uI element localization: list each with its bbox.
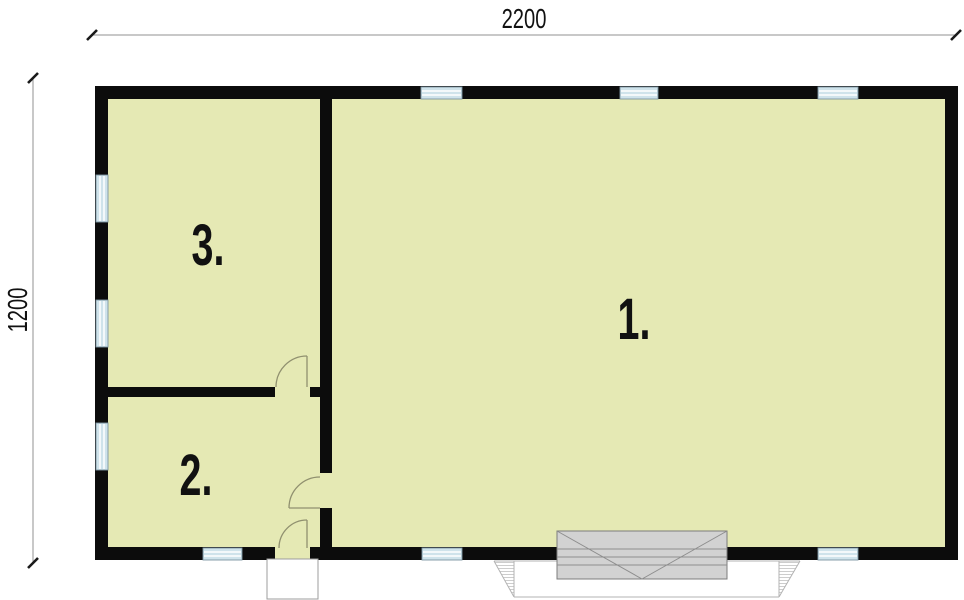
room-label-3: 3. [192, 212, 225, 277]
window-symbol [96, 300, 108, 347]
interior-wall-segment [106, 387, 275, 397]
entrance-step [267, 559, 318, 599]
interior-wall-segment [320, 99, 332, 473]
dimension-left: 1200 [3, 73, 38, 568]
floor-area [108, 99, 945, 547]
window-symbol [818, 548, 858, 560]
floor-plan-page: 2200 1200 [0, 0, 964, 600]
floor-plan-canvas: 2200 1200 [0, 0, 964, 600]
room-label-1: 1. [618, 286, 651, 351]
dimension-top: 2200 [87, 4, 961, 40]
dimension-top-label: 2200 [502, 4, 547, 35]
room-label-2: 2. [180, 442, 213, 507]
dimension-left-label: 1200 [3, 288, 34, 333]
window-symbol [203, 548, 242, 560]
window-symbol [96, 175, 108, 222]
interior-wall-segment [310, 387, 320, 397]
garage-door-symbol [557, 531, 727, 579]
window-symbol [818, 87, 858, 99]
window-symbol [422, 548, 462, 560]
window-symbol [96, 423, 108, 470]
window-symbol [421, 87, 462, 99]
door-opening [275, 546, 310, 561]
interior-wall-segment [320, 508, 332, 547]
window-symbol [620, 87, 658, 99]
